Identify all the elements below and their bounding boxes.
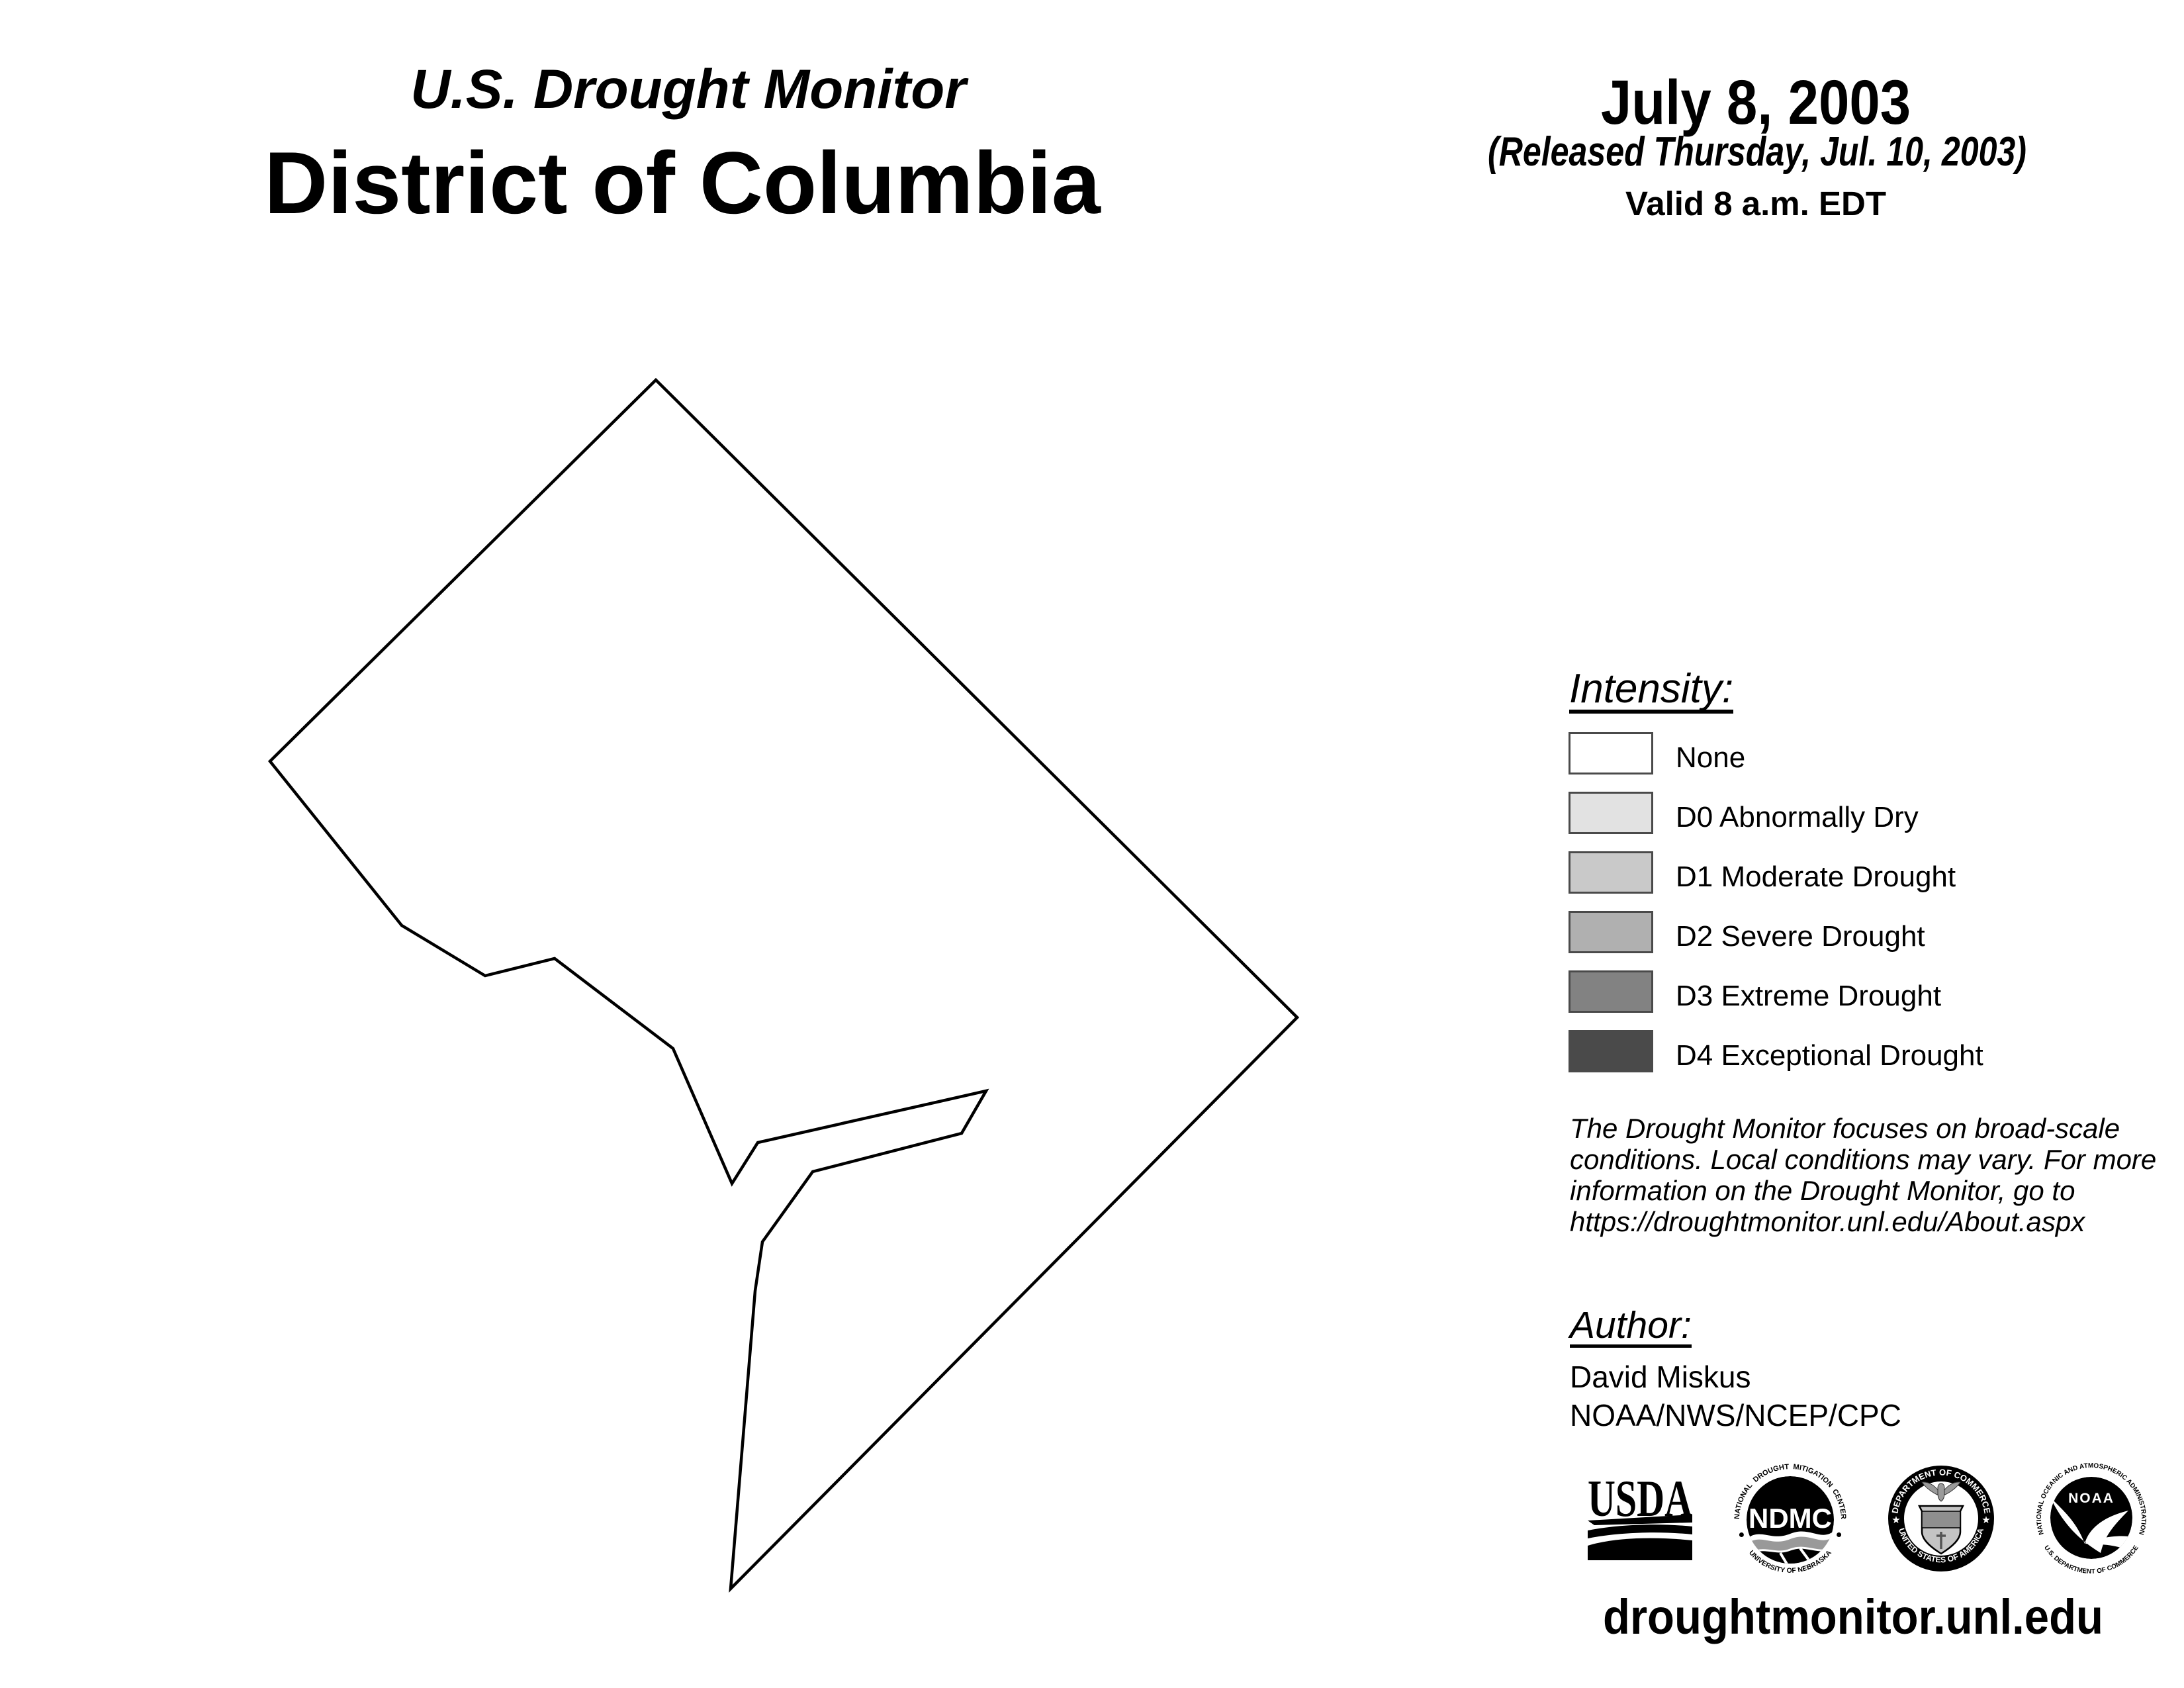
svg-text:NDMC: NDMC xyxy=(1749,1503,1832,1534)
svg-text:NOAA: NOAA xyxy=(2068,1491,2115,1506)
svg-text:★: ★ xyxy=(1981,1515,1990,1526)
svg-text:★: ★ xyxy=(1891,1515,1900,1526)
